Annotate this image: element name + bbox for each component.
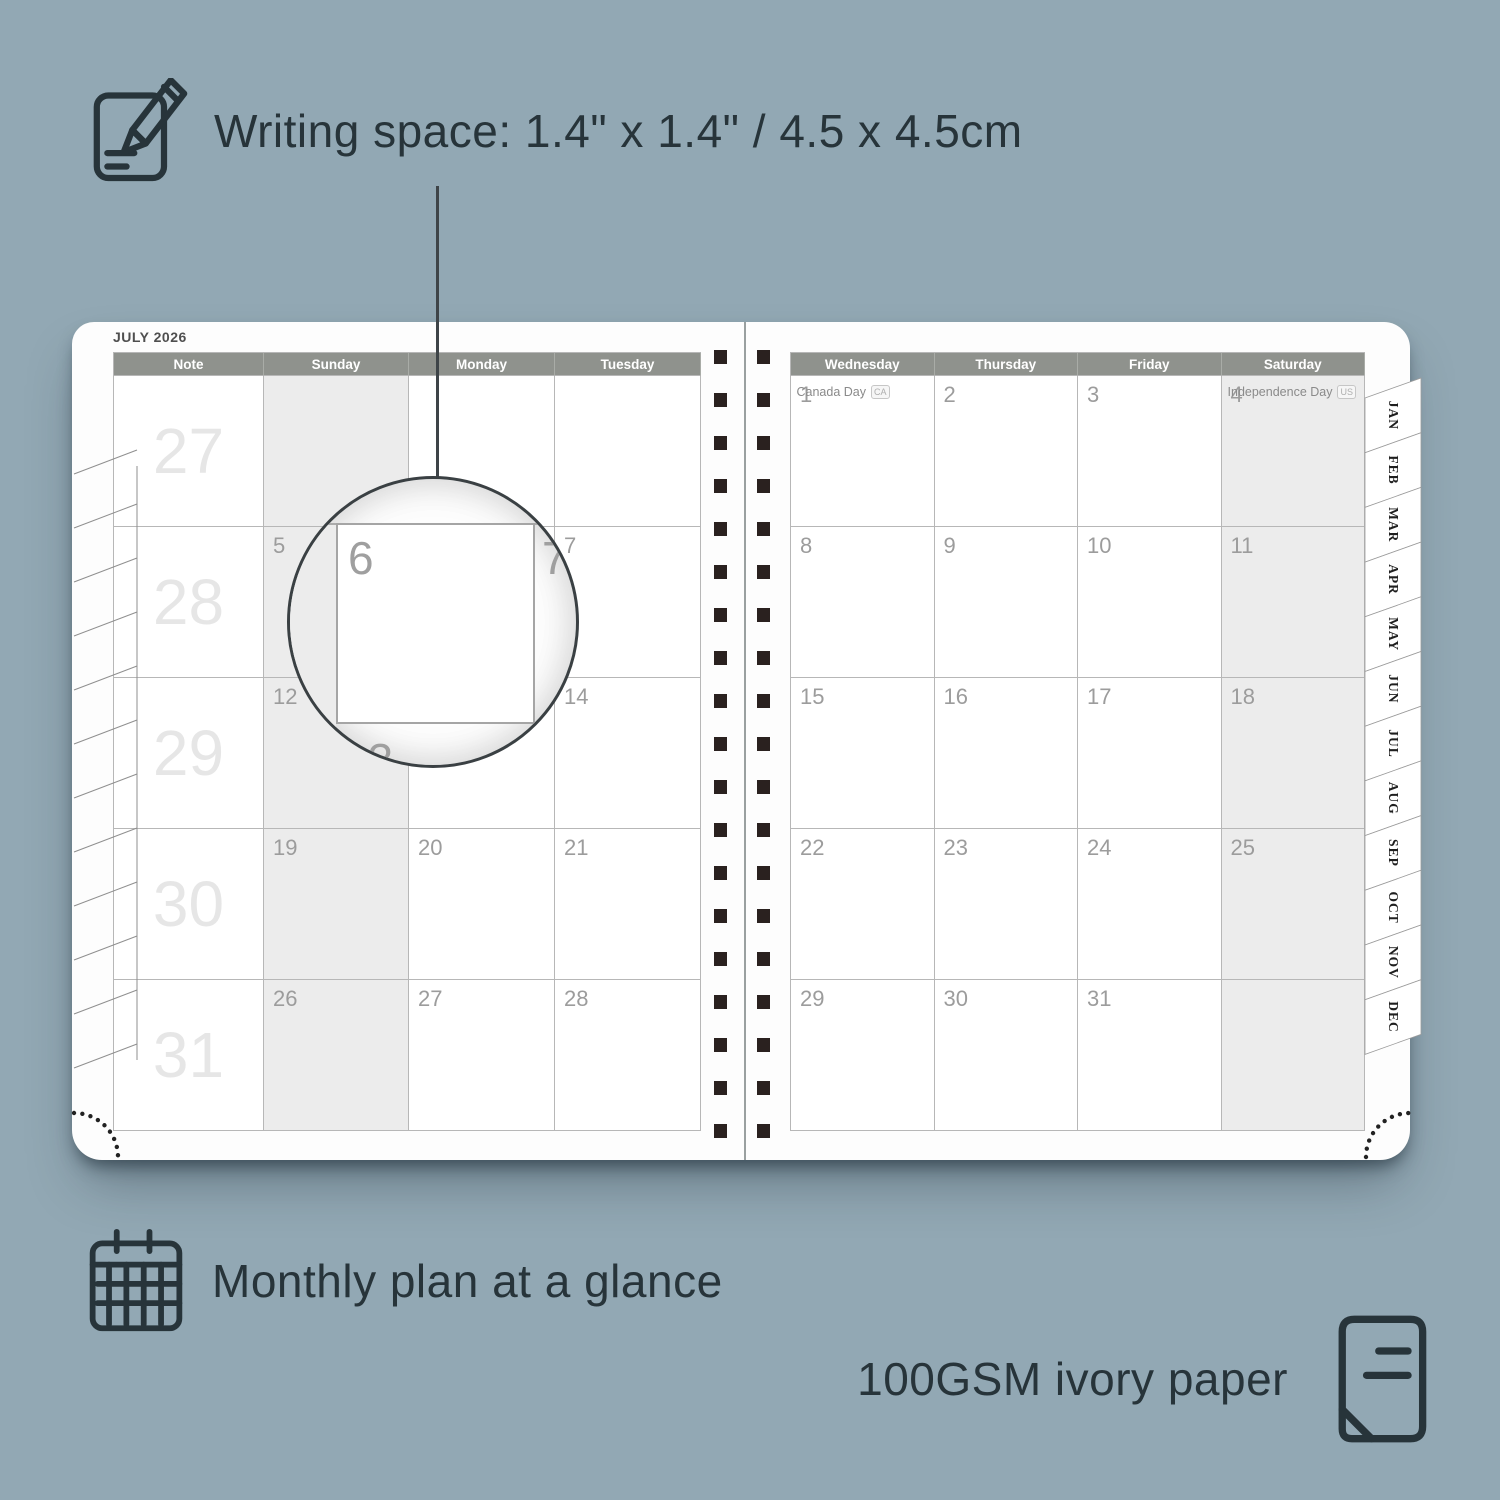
- date-number: 2: [944, 382, 956, 408]
- date-number: 5: [273, 533, 285, 559]
- planner-product-image: Writing space: 1.4" x 1.4" / 4.5 x 4.5cm…: [0, 0, 1500, 1500]
- binding-hole: [757, 436, 770, 450]
- date-number: 26: [273, 986, 297, 1012]
- hatch-line: [74, 612, 137, 636]
- binding-hole: [757, 995, 770, 1009]
- calendar-cell: 22: [791, 829, 935, 980]
- date-number: 22: [800, 835, 824, 861]
- calendar-cell: 27: [409, 980, 555, 1131]
- binding-hole: [757, 866, 770, 880]
- hatch-line: [74, 450, 137, 474]
- page-edge-hatching: [74, 420, 138, 1120]
- month-tab-label: JAN: [1386, 401, 1401, 430]
- hatch-line: [74, 936, 137, 960]
- month-tab-label: FEB: [1386, 455, 1401, 484]
- calendar-cell: 11: [1222, 527, 1366, 678]
- paper-quality-annotation: 100GSM ivory paper: [857, 1312, 1436, 1446]
- note-pencil-icon: [92, 78, 188, 184]
- column-header: Thursday: [935, 353, 1079, 376]
- calendar-cell: 17: [1078, 678, 1222, 829]
- calendar-grid-icon: [86, 1228, 186, 1334]
- binding-hole: [757, 651, 770, 665]
- month-title: JULY 2026: [113, 329, 187, 345]
- binding-hole: [757, 780, 770, 794]
- date-number: 30: [944, 986, 968, 1012]
- date-number: 20: [418, 835, 442, 861]
- hatch-line: [74, 1044, 137, 1068]
- date-number: 10: [1087, 533, 1111, 559]
- date-number: 16: [944, 684, 968, 710]
- binding-hole: [714, 866, 727, 880]
- binding-hole: [714, 393, 727, 407]
- magnified-date-13: 13: [342, 733, 393, 768]
- magnified-date-6: 6: [348, 531, 374, 585]
- month-tab-label: MAY: [1386, 617, 1401, 651]
- date-number: 14: [564, 684, 588, 710]
- hatch-line: [74, 666, 137, 690]
- binding-hole: [714, 780, 727, 794]
- calendar-cell: 25: [1222, 829, 1366, 980]
- calendar-cell: 26: [264, 980, 409, 1131]
- binding-hole: [757, 823, 770, 837]
- date-number: 18: [1231, 684, 1255, 710]
- calendar-cell: 8: [791, 527, 935, 678]
- calendar-cell: 28: [555, 980, 701, 1131]
- month-tab-label: JUL: [1386, 729, 1401, 758]
- spiral-binding: [712, 342, 774, 1142]
- binding-hole: [757, 737, 770, 751]
- hatch-line: [74, 720, 137, 744]
- month-tab-label: SEP: [1386, 839, 1401, 867]
- date-number: 19: [273, 835, 297, 861]
- calendar-cell: 14: [555, 678, 701, 829]
- date-number: 21: [564, 835, 588, 861]
- binding-hole: [714, 608, 727, 622]
- hatch-line: [74, 558, 137, 582]
- callout-line: [436, 186, 439, 480]
- column-header: Monday: [409, 353, 555, 376]
- binding-hole: [714, 952, 727, 966]
- binding-hole: [714, 823, 727, 837]
- column-header: Note: [114, 353, 264, 376]
- calendar-cell: 2: [935, 376, 1079, 527]
- binding-hole: [714, 1038, 727, 1052]
- date-number: 17: [1087, 684, 1111, 710]
- binding-hole: [757, 694, 770, 708]
- binding-hole: [757, 565, 770, 579]
- binding-hole: [714, 694, 727, 708]
- binding-hole: [757, 608, 770, 622]
- binding-hole: [714, 737, 727, 751]
- calendar-cell: 15: [791, 678, 935, 829]
- holiday-label: Independence DayUS: [1228, 385, 1356, 399]
- column-header: Sunday: [264, 353, 409, 376]
- month-tab-label: AUG: [1386, 782, 1401, 815]
- calendar-cell: 1Canada DayCA: [791, 376, 935, 527]
- binding-hole: [714, 565, 727, 579]
- binding-hole: [714, 651, 727, 665]
- month-tab-label: OCT: [1386, 892, 1401, 924]
- hatch-line: [74, 882, 137, 906]
- date-number: 8: [800, 533, 812, 559]
- binding-hole: [714, 1124, 727, 1138]
- monthly-plan-text: Monthly plan at a glance: [212, 1254, 723, 1308]
- planner-spread-page: JULY 2026 NoteSundayMondayTuesday2728567…: [72, 322, 1410, 1160]
- calendar-cell: 16: [935, 678, 1079, 829]
- paper-quality-text: 100GSM ivory paper: [857, 1352, 1288, 1406]
- calendar-cell: 18: [1222, 678, 1366, 829]
- hatch-line: [74, 504, 137, 528]
- binding-hole: [714, 479, 727, 493]
- binding-hole: [757, 479, 770, 493]
- monthly-plan-annotation: Monthly plan at a glance: [86, 1228, 723, 1334]
- column-header: Wednesday: [791, 353, 935, 376]
- calendar-cell: 10: [1078, 527, 1222, 678]
- magnified-date-7: 7: [542, 531, 568, 585]
- calendar-cell: [1222, 980, 1366, 1131]
- calendar-cell: 3: [1078, 376, 1222, 527]
- binding-hole: [757, 1081, 770, 1095]
- hatch-line: [74, 774, 137, 798]
- date-number: 27: [418, 986, 442, 1012]
- column-header: Friday: [1078, 353, 1222, 376]
- date-number: 31: [1087, 986, 1111, 1012]
- hatch-line: [74, 990, 137, 1014]
- calendar-cell: 29: [791, 980, 935, 1131]
- binding-hole: [757, 522, 770, 536]
- calendar-cell: 9: [935, 527, 1079, 678]
- binding-hole: [757, 350, 770, 364]
- binding-hole: [714, 1081, 727, 1095]
- date-number: 23: [944, 835, 968, 861]
- month-tab-label: MAR: [1386, 507, 1401, 542]
- magnified-sunday-shading: [290, 524, 336, 768]
- date-number: 29: [800, 986, 824, 1012]
- holiday-country-badge: CA: [871, 385, 890, 399]
- calendar-cell: 19: [264, 829, 409, 980]
- binding-hole: [757, 393, 770, 407]
- month-tab-label: APR: [1386, 564, 1401, 595]
- right-page-calendar-grid: WednesdayThursdayFridaySaturday1Canada D…: [790, 352, 1365, 1131]
- holiday-label: Canada DayCA: [796, 385, 889, 399]
- calendar-cell: 21: [555, 829, 701, 980]
- month-tab-label: JUN: [1386, 674, 1401, 703]
- holiday-country-badge: US: [1337, 385, 1356, 399]
- date-number: 9: [944, 533, 956, 559]
- calendar-cell: [555, 376, 701, 527]
- binding-hole: [714, 350, 727, 364]
- writing-space-text: Writing space: 1.4" x 1.4" / 4.5 x 4.5cm: [214, 104, 1023, 158]
- column-header: Tuesday: [555, 353, 701, 376]
- magnifier-circle: 6 7 13: [287, 476, 579, 768]
- calendar-cell: 31: [1078, 980, 1222, 1131]
- binding-hole: [714, 522, 727, 536]
- date-number: 28: [564, 986, 588, 1012]
- month-tab-strip: JANFEBMARAPRMAYJUNJULAUGSEPOCTNOVDEC: [1365, 322, 1422, 1160]
- month-tab-label: NOV: [1386, 946, 1401, 979]
- binding-hole: [757, 1124, 770, 1138]
- date-number: 11: [1231, 533, 1254, 559]
- month-tab-label: DEC: [1386, 1001, 1401, 1033]
- binding-hole: [714, 995, 727, 1009]
- date-number: 15: [800, 684, 824, 710]
- hatch-line: [74, 828, 137, 852]
- binding-hole: [757, 909, 770, 923]
- binding-hole: [714, 436, 727, 450]
- calendar-cell: 20: [409, 829, 555, 980]
- date-number: 25: [1231, 835, 1255, 861]
- binding-hole: [714, 909, 727, 923]
- calendar-cell: 23: [935, 829, 1079, 980]
- date-number: 3: [1087, 382, 1099, 408]
- writing-space-annotation: Writing space: 1.4" x 1.4" / 4.5 x 4.5cm: [92, 78, 1023, 184]
- column-header: Saturday: [1222, 353, 1366, 376]
- date-number: 24: [1087, 835, 1111, 861]
- calendar-cell: 24: [1078, 829, 1222, 980]
- calendar-cell: 4Independence DayUS: [1222, 376, 1366, 527]
- binding-hole: [757, 1038, 770, 1052]
- paper-sheet-icon: [1324, 1312, 1436, 1446]
- binding-hole: [757, 952, 770, 966]
- calendar-cell: 30: [935, 980, 1079, 1131]
